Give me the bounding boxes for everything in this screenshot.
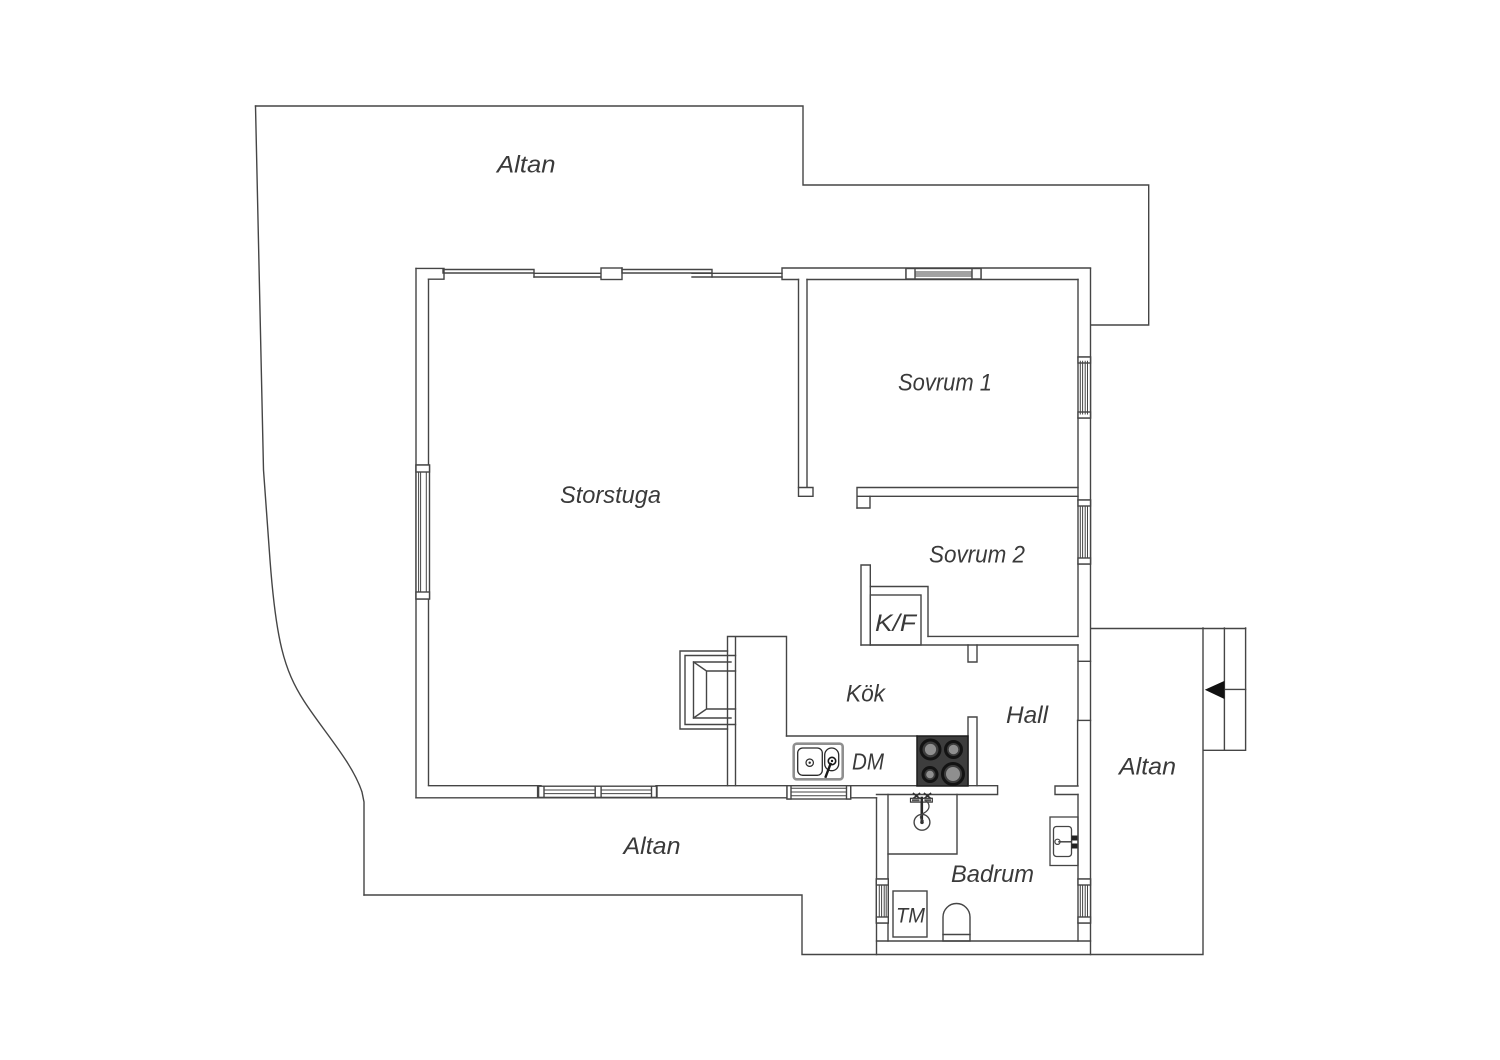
svg-text:Altan: Altan [621, 833, 680, 860]
svg-text:K/F: K/F [875, 610, 917, 637]
svg-text:Kök: Kök [846, 681, 887, 708]
svg-text:Altan: Altan [495, 152, 556, 179]
svg-text:DM: DM [852, 749, 885, 775]
svg-text:Sovrum 1: Sovrum 1 [898, 370, 992, 397]
svg-text:Hall: Hall [1006, 702, 1049, 729]
svg-text:Altan: Altan [1117, 754, 1176, 781]
svg-text:Storstuga: Storstuga [560, 482, 661, 509]
svg-text:Badrum: Badrum [951, 861, 1034, 888]
svg-text:TM: TM [896, 904, 925, 927]
svg-text:Sovrum 2: Sovrum 2 [929, 542, 1025, 569]
